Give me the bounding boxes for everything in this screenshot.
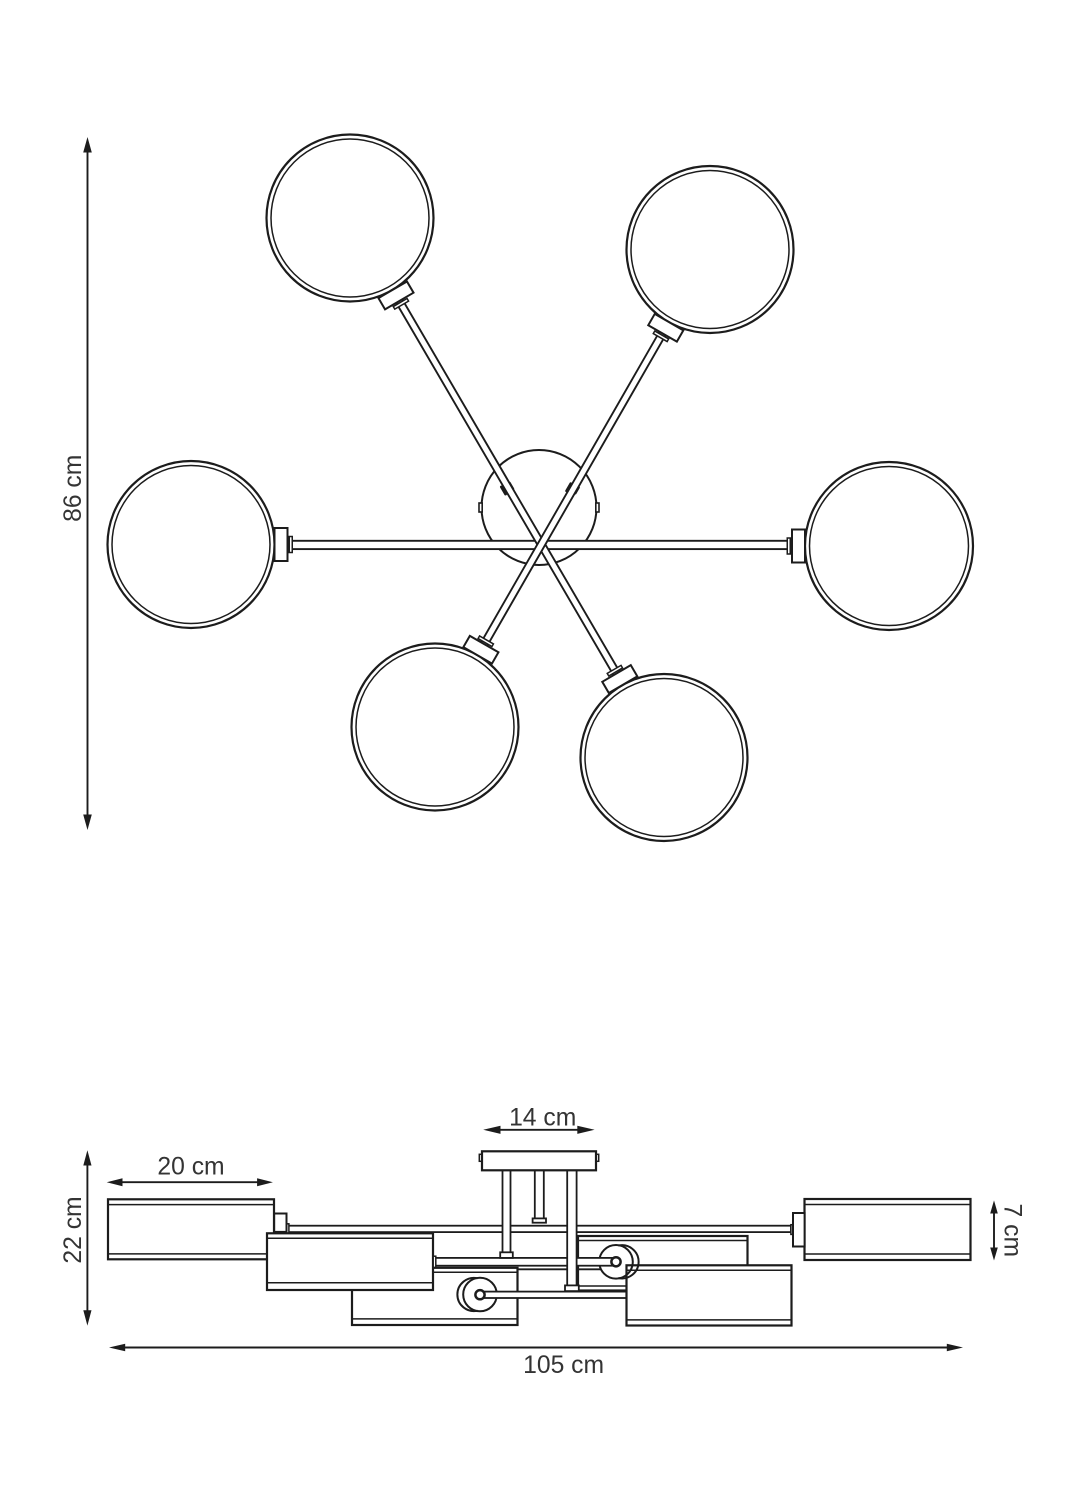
svg-text:20 cm: 20 cm [157,1153,224,1180]
svg-text:14 cm: 14 cm [509,1104,576,1131]
svg-text:22 cm: 22 cm [60,1196,87,1263]
svg-text:86 cm: 86 cm [60,455,87,522]
svg-text:105 cm: 105 cm [523,1352,604,1379]
svg-text:7 cm: 7 cm [998,1204,1025,1258]
